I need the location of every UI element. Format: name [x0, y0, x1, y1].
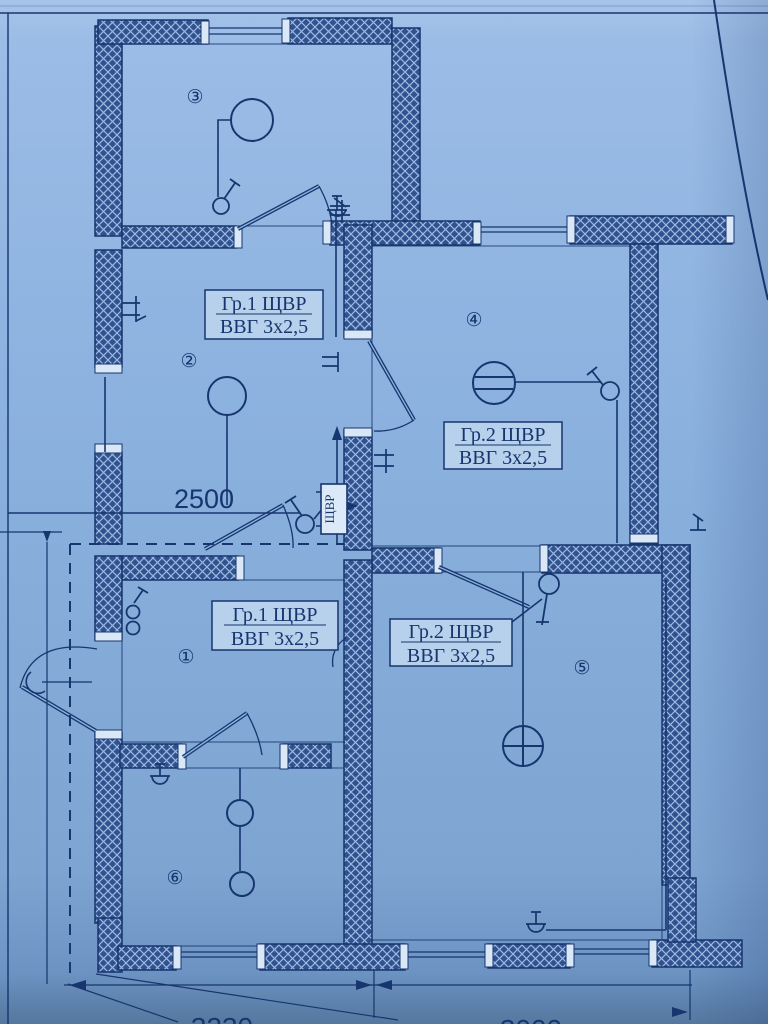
- room-marker: ②: [180, 350, 197, 372]
- room-marker: ⑤: [573, 657, 590, 679]
- group-label: Гр.1 ЩВР: [222, 293, 307, 315]
- wall: [652, 940, 742, 967]
- room-marker: ③: [186, 86, 203, 108]
- dimension-text-clipped: 3000: [500, 1014, 562, 1024]
- wall: [95, 250, 122, 367]
- wall: [260, 944, 405, 970]
- cable-label: ВВГ 3х2,5: [459, 447, 547, 469]
- wall: [392, 28, 420, 230]
- panel-label: ЩВР: [322, 494, 337, 523]
- group-label: Гр.2 ЩВР: [409, 621, 494, 643]
- chandelier-icon: [503, 726, 543, 766]
- label-box-room1: Гр.1 ЩВР ВВГ 3х2,5: [212, 601, 338, 650]
- wall: [98, 20, 208, 44]
- wall: [488, 944, 570, 968]
- wall: [344, 225, 372, 337]
- label-box-room2: Гр.1 ЩВР ВВГ 3х2,5: [205, 290, 323, 339]
- wall: [630, 244, 658, 544]
- dimension-text-clipped: 3230: [191, 1012, 253, 1024]
- wall: [372, 548, 440, 573]
- wall: [344, 560, 372, 950]
- cable-label: ВВГ 3х2,5: [407, 645, 495, 667]
- wall: [344, 430, 372, 550]
- room-marker: ①: [177, 646, 194, 668]
- floor-plan-drawing: ЩВР Гр.1 ЩВР ВВГ 3х2,5 Гр.2 ЩВР ВВГ 3х2,…: [0, 0, 768, 1024]
- label-box-room5: Гр.2 ЩВР ВВГ 3х2,5: [390, 619, 512, 667]
- wall: [570, 216, 732, 244]
- group-label: Гр.2 ЩВР: [461, 424, 546, 446]
- distribution-board: ЩВР: [316, 484, 347, 534]
- wall: [118, 946, 176, 970]
- wall: [288, 18, 392, 44]
- cable-label: ВВГ 3х2,5: [220, 316, 308, 338]
- room-marker: ⑥: [166, 867, 183, 889]
- label-box-room4: Гр.2 ЩВР ВВГ 3х2,5: [444, 422, 562, 469]
- scanned-floor-plan-page: ЩВР Гр.1 ЩВР ВВГ 3х2,5 Гр.2 ЩВР ВВГ 3х2,…: [0, 0, 768, 1024]
- wall: [95, 26, 122, 236]
- cable-label: ВВГ 3х2,5: [231, 628, 319, 650]
- group-label: Гр.1 ЩВР: [233, 604, 318, 626]
- wall: [668, 878, 696, 942]
- room-marker: ④: [465, 309, 482, 331]
- wall: [283, 744, 331, 768]
- wall: [120, 556, 238, 580]
- wall: [95, 733, 122, 923]
- wall: [120, 744, 182, 768]
- wall: [95, 452, 122, 544]
- dimension-text: 2500: [174, 484, 234, 514]
- wall: [122, 226, 236, 248]
- wall: [95, 556, 122, 640]
